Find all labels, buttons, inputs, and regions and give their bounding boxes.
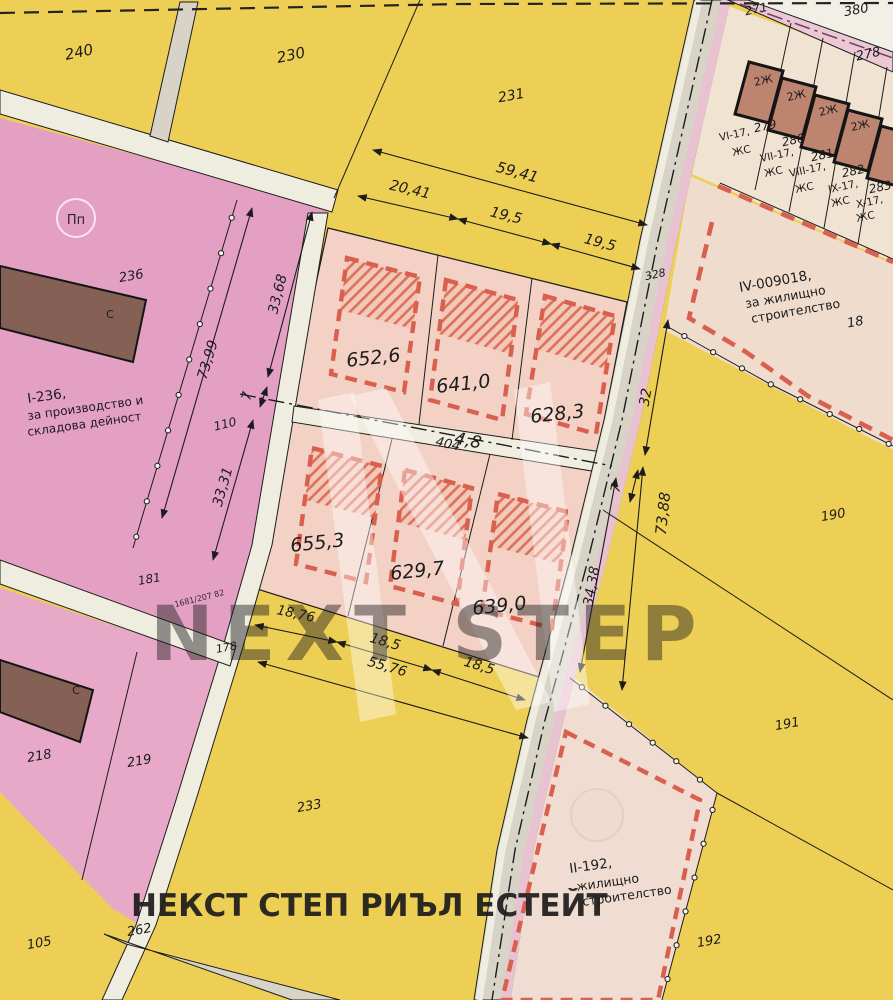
boundary-dot	[187, 357, 192, 362]
stamp-pp: Пп	[67, 213, 85, 228]
boundary-dot	[739, 366, 744, 371]
boundary-dot	[674, 943, 679, 948]
boundary-dot	[144, 499, 149, 504]
boundary-dot	[827, 412, 832, 417]
boundary-dot	[650, 740, 655, 745]
cadastral-map: 2402302313802712782792802812822831819019…	[0, 0, 893, 1000]
boundary-dot	[674, 759, 679, 764]
wm-agency: НЕКСТ СТЕП РИЪЛ ЕСТЕЙТ	[131, 888, 608, 924]
boundary-dot	[165, 428, 170, 433]
boundary-dot	[665, 976, 670, 981]
building-c-2: С	[72, 684, 80, 697]
boundary-dot	[768, 382, 773, 387]
boundary-dot	[697, 777, 702, 782]
boundary-dot	[197, 321, 202, 326]
boundary-dot	[683, 909, 688, 914]
parcel-18: 18	[846, 314, 865, 332]
wm-next-step: NEXT STEP	[150, 589, 707, 678]
boundary-dot	[857, 426, 862, 431]
boundary-dot	[626, 722, 631, 727]
dim-32: 32	[637, 387, 656, 407]
boundary-dot	[229, 215, 234, 220]
boundary-dot	[798, 397, 803, 402]
boundary-dot	[176, 392, 181, 397]
boundary-dot	[710, 807, 715, 812]
stamp-faint-circle	[571, 789, 623, 841]
boundary-dot	[155, 463, 160, 468]
boundary-dot	[218, 251, 223, 256]
boundary-dot	[208, 286, 213, 291]
boundary-dot	[682, 333, 687, 338]
boundary-dot	[603, 703, 608, 708]
boundary-dot	[134, 534, 139, 539]
building-c-1: С	[106, 308, 114, 321]
boundary-dot	[886, 441, 891, 446]
boundary-dot	[692, 875, 697, 880]
boundary-dot	[701, 841, 706, 846]
boundary-dot	[711, 350, 716, 355]
